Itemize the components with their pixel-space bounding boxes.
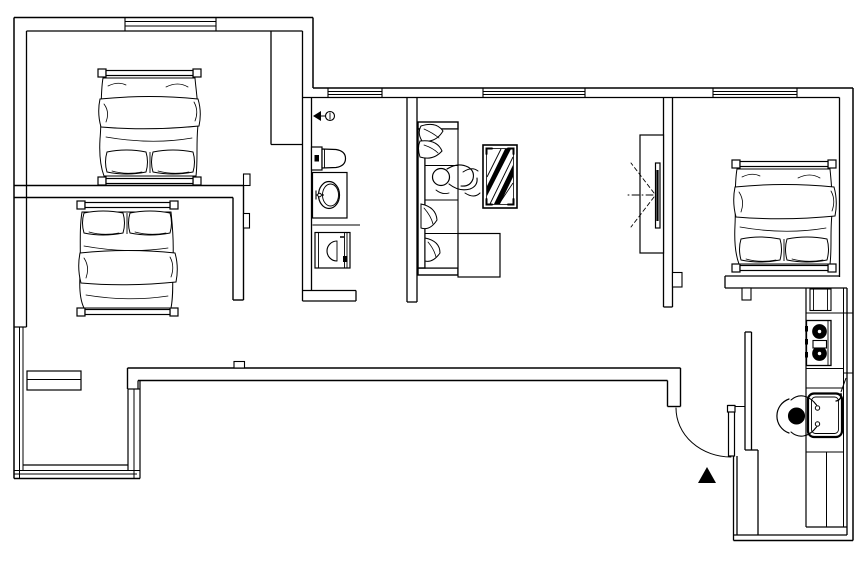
washing-machine [315,233,350,269]
entry-door [676,406,745,458]
hallway-south-wall [128,362,681,407]
toilet [312,147,346,170]
bed-3 [732,160,836,272]
entrance-marker-triangle [698,467,716,483]
bathroom-sink [313,173,361,226]
floor-plan [0,0,866,565]
floor-plan-svg [0,0,866,565]
rug [483,145,517,208]
hall-bench [27,371,81,390]
bed-1 [98,69,201,185]
shower-head-icon [313,111,335,121]
stove [805,321,831,366]
kitchen-sink [808,378,846,437]
tv-unit [628,135,664,253]
bed-2 [77,201,178,316]
